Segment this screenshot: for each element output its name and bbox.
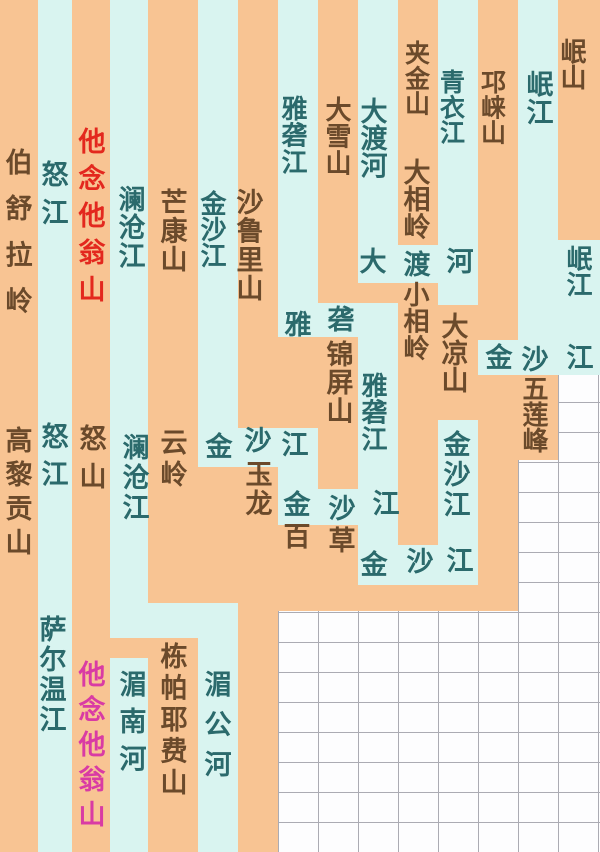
river-stripe (110, 603, 238, 638)
river-label-金沙江: 金沙江 (198, 190, 224, 268)
mountain-label-云岭: 云岭 (158, 428, 185, 492)
mountain-label-小相岭: 小相岭 (401, 281, 427, 361)
river-label-金: 金 (483, 343, 510, 370)
river-stripe (110, 0, 148, 638)
river-label-雅砻江: 雅砻江 (359, 372, 385, 452)
mountain-label-草: 草 (326, 526, 353, 553)
river-label-江: 江 (564, 343, 591, 370)
river-label-澜沧江: 澜沧江 (116, 185, 143, 270)
mountain-label-怒山: 怒山 (77, 424, 104, 500)
mountain-range-stripe (148, 0, 198, 603)
mountain-label-五莲峰: 五莲峰 (520, 375, 546, 453)
river-label-金: 金 (203, 432, 230, 459)
mountain-range-stripe (198, 467, 238, 603)
river-label-沙: 沙 (519, 345, 546, 372)
river-label-金: 金 (281, 490, 308, 517)
mountain-label-栋帕耶费山: 栋帕耶费山 (158, 642, 185, 800)
mountain-label-沙鲁里山: 沙鲁里山 (234, 188, 261, 303)
river-label-怒江: 怒江 (39, 160, 66, 236)
mountain-range-stripe (358, 280, 398, 303)
mountain-range-stripe (478, 0, 518, 340)
mountain-label-伯舒拉岭: 伯舒拉岭 (3, 148, 30, 333)
river-label-砻: 砻 (325, 305, 352, 332)
river-label-雅砻江: 雅砻江 (279, 95, 305, 175)
river-label-沙: 沙 (326, 494, 353, 521)
mountain-label-夹金山: 夹金山 (404, 40, 429, 116)
mountain-label-芒康山: 芒康山 (158, 188, 185, 274)
mountain-range-stripe (110, 638, 148, 660)
mountain-label-玉龙: 玉龙 (243, 460, 270, 518)
mountain-range-stripe (278, 337, 318, 428)
mountain-label-大相岭: 大相岭 (401, 158, 428, 240)
river-stripe (518, 0, 558, 372)
mountain-range-stripe (558, 0, 600, 240)
mountain-label-highlight-red-他念他翁山: 他念他翁山 (76, 127, 103, 312)
mountain-label-岷山: 岷山 (558, 38, 584, 90)
river-label-金沙江: 金沙江 (441, 430, 468, 520)
river-label-岷江: 岷江 (564, 245, 590, 297)
mountain-label-百: 百 (281, 522, 308, 549)
river-label-江: 江 (279, 430, 306, 457)
river-label-大: 大 (357, 247, 384, 274)
river-label-大渡河: 大渡河 (358, 97, 385, 179)
mountain-range-stripe (478, 375, 518, 611)
river-label-渡: 渡 (401, 250, 428, 277)
mountain-label-邛崃山: 邛崃山 (480, 69, 505, 145)
mountain-river-diagram: 伯舒拉岭怒江他念他翁山澜沧江芒康山金沙江沙鲁里山雅砻江大雪山大渡河夹金山青衣江邛… (0, 0, 600, 852)
river-label-河: 河 (444, 247, 471, 274)
river-label-萨尔温江: 萨尔温江 (37, 615, 64, 735)
mountain-label-highlight-pink-他念他翁山: 他念他翁山 (76, 660, 103, 835)
mountain-range-stripe (238, 467, 278, 852)
river-label-江: 江 (370, 489, 397, 516)
river-label-青衣江: 青衣江 (439, 69, 464, 145)
mountain-label-高黎贡山: 高黎贡山 (3, 426, 30, 562)
river-label-雅: 雅 (282, 310, 309, 337)
river-label-沙: 沙 (242, 426, 269, 453)
river-label-沙: 沙 (404, 547, 431, 574)
river-label-金: 金 (358, 550, 385, 577)
river-label-怒江: 怒江 (39, 422, 66, 497)
mountain-label-大凉山: 大凉山 (439, 312, 466, 393)
river-label-江: 江 (444, 546, 471, 573)
mountain-label-大雪山: 大雪山 (323, 96, 349, 176)
mountain-label-锦屏山: 锦屏山 (324, 340, 351, 425)
river-label-澜沧江: 澜沧江 (120, 433, 147, 523)
river-label-湄南河: 湄南河 (117, 670, 144, 782)
river-label-湄公河: 湄公河 (202, 670, 229, 790)
river-label-岷江: 岷江 (524, 70, 551, 126)
